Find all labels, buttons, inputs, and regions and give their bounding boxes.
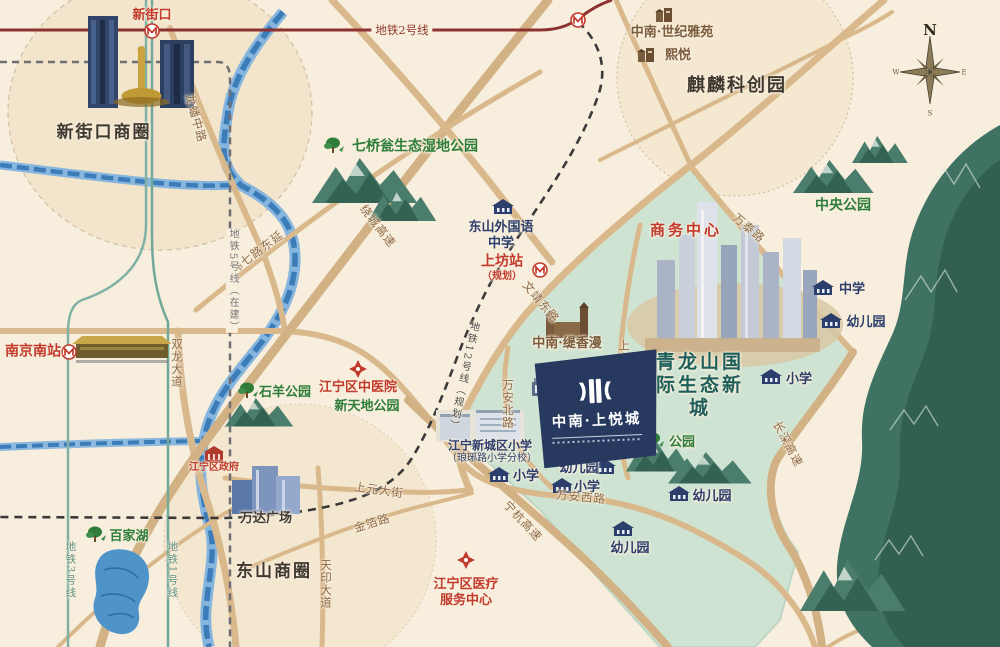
qilin-park-label: 麒麟科创园 [687,75,787,97]
central-park-label: 中央公园 [815,197,871,214]
metro-line3-label: 地铁3号线 [64,541,77,600]
shangfang-metro-icon [533,263,547,277]
xintiandi-park-label: 新天地公园 [334,399,399,415]
compass-n-label: N [923,21,937,39]
xincheng-primary-label: 江宁新城区小学 [448,439,532,454]
xincheng-primary-branch-label: （琅琊路小学分校） [447,453,537,465]
shangyuecheng-subtitle-line [552,433,643,443]
park-label: 公园 [669,435,695,451]
shangyuecheng-banner: 中南·上悦城 [531,349,662,468]
metro-line5-label: 地铁5号线（在建） [226,229,238,333]
wanda-plaza-label: 万达广场 [240,511,292,527]
baijia-lake-water [94,549,150,634]
kindergarten-label-bc: 幼儿园 [610,541,649,557]
dongshan-fls-label: 东山外国语中学 [466,220,536,252]
nanjing-south-label: 南京南站 [5,343,61,360]
central-park-mountain-2 [852,136,908,163]
kindergarten-label-r2: 幼儿园 [692,489,731,505]
baijiahu-tree-icon [86,527,106,543]
xinjiekou-metro-icon [145,24,159,38]
metro-line1-label: 地铁1号线 [166,541,179,600]
shangyuecheng-logo [575,376,616,406]
road-label-shuanglong: 双龙大道 [170,338,184,388]
tcm-hospital-cross-icon [349,360,367,378]
compass-e-label: E [961,69,966,78]
metro-line2-label: 地铁2号线 [371,23,432,37]
road-label-wanan-north: 万安北路 [501,379,515,429]
shangfang-note-label: （规划） [482,271,522,283]
compass [900,36,960,104]
nanjing-south-station-illustration [72,336,172,363]
jiangning-gov-label: 江宁区政府 [189,462,239,474]
compass-s-label: S [928,110,933,119]
primary-school-label-r: 小学 [786,372,812,388]
business-center-label: 商务中心 [650,221,722,239]
kindergarten-label-r1: 幼儿园 [846,315,885,331]
baijia-lake-label: 百家湖 [109,529,148,545]
location-map: 新街口 地铁2号线 新街口商圈 龙蟠中路 中南·世纪雅苑 熙悦 麒麟科创园 N … [0,0,1000,647]
primary-school-label-l: 小学 [513,469,539,485]
dongshan-cbd-label: 东山商圈 [236,562,312,583]
line2-station-icon [571,13,585,27]
qiqiaoweng-park-label: 七桥瓮生态湿地公园 [352,138,478,155]
shiyang-park-label: 石羊公园 [259,385,311,401]
dongshan-fls-icon [492,199,514,214]
medical-center-label: 江宁区医疗服务中心 [430,577,502,609]
qiqiaoweng-tree-icon [324,138,344,154]
eco-city-label: 青龙山国际生态新城 [650,351,750,421]
compass-w-label: W [892,69,899,78]
xinjiekou-cbd-label: 新街口商圈 [57,123,152,144]
road-label-tianyin: 天印大道 [319,559,333,609]
shangyuecheng-title: 中南·上悦城 [551,407,641,432]
middle-school-label: 中学 [839,282,865,298]
xiyue-label: 熙悦 [665,48,691,64]
tixiangman-label: 中南·缇香漫 [532,336,602,352]
shiji-yayuan-label: 中南·世纪雅苑 [631,25,714,41]
nanjing-south-metro-icon [62,345,76,359]
xinjiekou-station-label: 新街口 [132,8,171,24]
shangfang-station-label: 上坊站 [481,253,523,270]
medical-center-cross-icon [457,551,475,569]
tcm-hospital-label: 江宁区中医院 [319,380,397,396]
